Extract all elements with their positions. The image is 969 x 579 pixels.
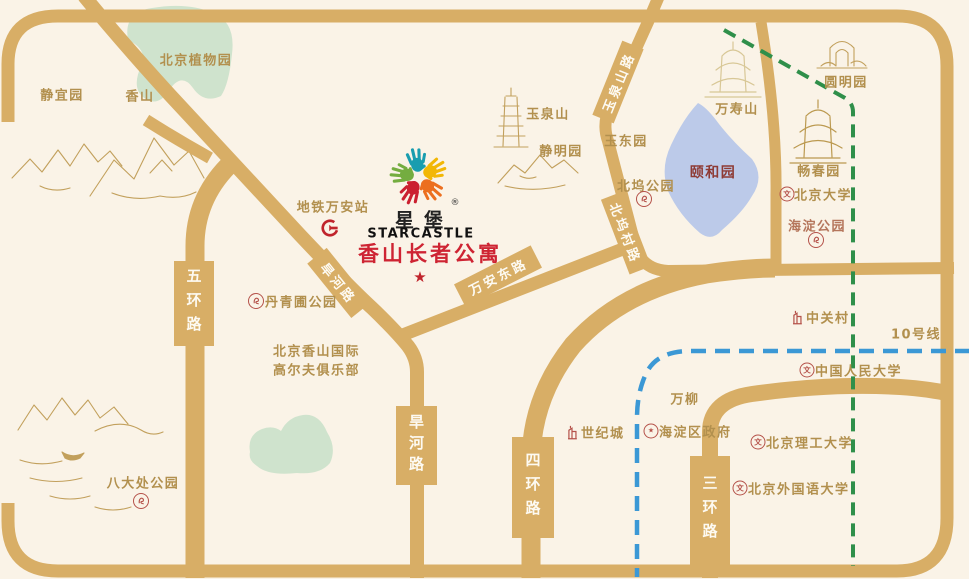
road-label-text: 五环路 [184,268,205,340]
registered-icon: ® [451,198,460,208]
label-haidian-government: 海淀区政府 [659,422,732,441]
label-golf-club-line1: 北京香山国际 [273,343,360,362]
road-label-ring5: 五环路 [174,261,214,346]
label-line10: 10号线 [891,324,941,343]
school-icon: 文 [800,363,815,378]
label-yuanmingyuan: 圆明园 [824,72,868,91]
label-beijing-botanical-garden: 北京植物园 [160,50,233,69]
building-icon [792,310,803,325]
label-danqingpu-park: 丹青圃公园 [265,292,338,311]
school-icon: 文 [751,435,766,450]
road-label-text: 旱河路 [406,414,427,477]
seal-icon [248,293,264,309]
label-zhongguancun: 中关村 [806,308,850,327]
label-peking-university: 北京大学 [794,185,852,204]
subway-logo-icon [320,218,341,239]
green-area-south [250,415,333,474]
road-label-text: 四环路 [523,452,544,524]
label-summer-palace: 颐和园 [690,162,737,182]
label-badachu-park: 八大处公园 [107,473,180,492]
yuanmingyuan-ruins-sketch [817,42,867,69]
label-wanshoushan: 万寿山 [715,99,759,118]
government-icon: ★ [644,424,659,439]
school-icon-glyph: 文 [736,484,744,492]
road-label-ring4: 四环路 [512,437,554,538]
school-icon-glyph: 文 [754,438,762,446]
ring5-road [195,166,228,578]
label-bit-university: 北京理工大学 [766,433,853,452]
road-label-text: 三环路 [700,475,721,547]
label-wanliu: 万柳 [670,389,699,408]
school-icon-glyph: 文 [783,190,791,198]
logo-hands-icon [388,146,450,208]
school-icon: 文 [780,187,795,202]
government-icon-glyph: ★ [648,428,654,435]
label-bfsu-university: 北京外国语大学 [748,479,850,498]
school-icon-glyph: 文 [803,366,811,374]
road-label-ring3: 三环路 [690,456,730,566]
label-century-city: 世纪城 [581,423,625,442]
jingmingyuan-mountain-sketch [498,155,578,189]
yuquanshan-pagoda-sketch [494,88,528,147]
label-jingyiyuan: 静宜园 [40,85,84,104]
building-icon [567,425,578,440]
label-wanan-metro-station: 地铁万安站 [297,197,370,216]
seal-icon [808,232,824,248]
map-canvas: 五环路 四环路 三环路 旱河路 旱河路 万安东路 玉泉山路 北坞村路 北京植物园… [0,0,969,579]
label-renmin-university: 中国人民大学 [815,361,902,380]
xiangshan-mountain-sketch [12,138,204,198]
changchunyuan-pagoda-sketch [790,100,846,163]
project-title: 香山长者公寓 [358,238,502,268]
seal-icon [133,493,149,509]
star-icon: ★ [413,268,426,286]
wanshoushan-tower-sketch [705,42,761,97]
label-golf-club-line2: 高尔夫俱乐部 [273,362,360,381]
wanshoushan-road [761,22,776,266]
seal-icon [636,191,652,207]
label-jingmingyuan: 静明园 [539,141,583,160]
label-changchunyuan: 畅春园 [797,161,841,180]
school-icon: 文 [733,481,748,496]
road-label-hanhe-south: 旱河路 [396,406,437,485]
label-xiangshan: 香山 [125,86,154,105]
label-yuquanshan-hill: 玉泉山 [526,104,570,123]
label-yudongyuan: 玉东园 [604,131,648,150]
